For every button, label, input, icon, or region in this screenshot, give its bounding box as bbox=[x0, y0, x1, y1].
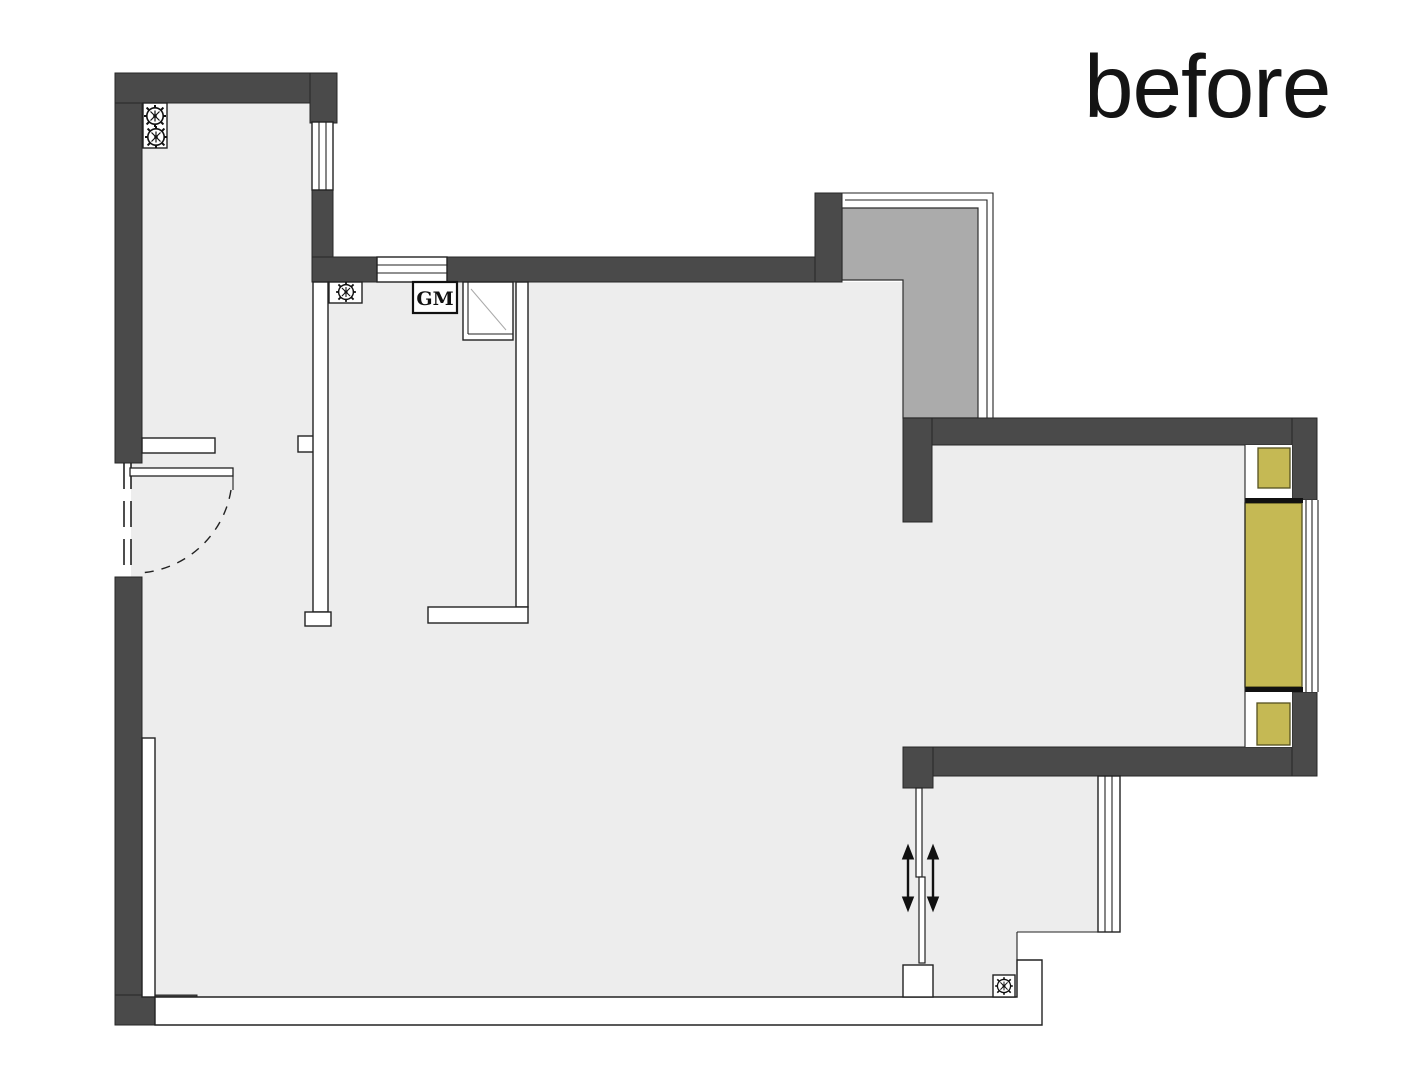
wall-left-lower bbox=[115, 577, 142, 1025]
floor-bedroom bbox=[932, 445, 1245, 747]
window-kitchen bbox=[377, 257, 447, 282]
window-top-left-room bbox=[312, 122, 333, 190]
sliding-door-leaf-1 bbox=[916, 788, 922, 877]
pipe-riser-icon bbox=[336, 282, 356, 302]
bay-divider-bottom bbox=[1245, 687, 1303, 692]
floor-drain-group bbox=[993, 975, 1015, 997]
bay-seat-main bbox=[1245, 503, 1302, 687]
partition-left-wall-liner bbox=[142, 738, 155, 997]
kitchen-pipe-box bbox=[329, 282, 362, 303]
wall-room-right bbox=[312, 190, 333, 257]
wall-slide-door-jamb-top bbox=[903, 747, 933, 788]
wall-bedroom-bottom bbox=[903, 747, 1317, 776]
wall-kitchen-top-a bbox=[312, 257, 377, 282]
gas-meter-box: GM bbox=[413, 282, 457, 313]
wall-top-left-room bbox=[115, 73, 337, 103]
floor-plan-svg: GM bbox=[0, 0, 1402, 1086]
bay-seat-bottom bbox=[1257, 703, 1290, 745]
floor-drain-icon bbox=[995, 977, 1013, 995]
wall-stub-up bbox=[815, 193, 842, 282]
sliding-door-leaf-2 bbox=[919, 877, 925, 963]
floor-left-column bbox=[142, 103, 312, 997]
floor-bedroom-opening bbox=[903, 522, 932, 747]
floor-entry-sliver bbox=[131, 463, 143, 577]
wall-bay-top-block bbox=[1292, 418, 1317, 500]
partition-kitchen-right bbox=[516, 282, 528, 607]
partition-kitchen-left-foot bbox=[305, 612, 331, 626]
bay-seat-top bbox=[1258, 448, 1290, 488]
pipe-riser-group bbox=[143, 103, 167, 148]
wall-bedroom-top bbox=[903, 418, 1317, 445]
floor-areas bbox=[131, 103, 1245, 997]
floor-corridor bbox=[933, 776, 1098, 932]
wall-bay-bottom-block bbox=[1292, 692, 1317, 776]
wall-left-upper bbox=[115, 73, 142, 463]
bay-divider-top bbox=[1245, 498, 1303, 503]
pipe-riser-icon bbox=[144, 105, 166, 127]
gas-meter-label: GM bbox=[416, 288, 453, 310]
wall-kitchen-top-b bbox=[447, 257, 815, 282]
water-heater-box bbox=[463, 282, 513, 340]
entry-door-leaf bbox=[130, 468, 233, 476]
partition-entry-bar bbox=[142, 438, 215, 453]
pipe-riser-icon bbox=[145, 126, 167, 148]
wall-top-left-corner bbox=[310, 73, 337, 123]
window-corridor bbox=[1098, 776, 1120, 932]
floor-plan-page: before bbox=[0, 0, 1402, 1086]
floor-living-kitchen bbox=[312, 282, 903, 997]
partition-kitchen-left bbox=[313, 282, 328, 612]
bay-glass-band bbox=[1302, 500, 1319, 692]
partition-slide-door-jamb-bottom bbox=[903, 965, 933, 997]
partition-kitchen-left-notch bbox=[298, 436, 314, 452]
wall-bedroom-left-stub bbox=[903, 418, 932, 522]
partition-kitchen-right-foot bbox=[428, 607, 528, 623]
